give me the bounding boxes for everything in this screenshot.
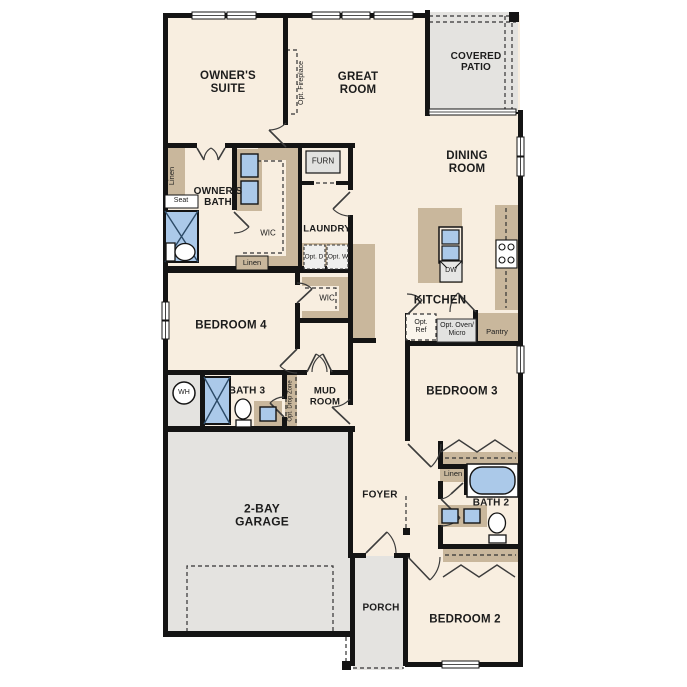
label-linen-owners-wic: Linen (243, 259, 261, 267)
label-wic-owners: WIC (260, 230, 276, 239)
floor-plan-geometry (0, 0, 687, 687)
room-label-bedroom-2: BEDROOM 2 (429, 614, 500, 627)
room-label-mud-room: MUD ROOM (303, 386, 347, 407)
label-opt-fireplace: Opt. Fireplace (298, 61, 306, 105)
label-furnace: FURN (312, 158, 334, 167)
garage-floor (166, 430, 350, 633)
room-label-bath-3: BATH 3 (229, 385, 266, 396)
porch-post (342, 661, 351, 670)
label-opt-oven-micro: Opt. Oven/ Micro (434, 322, 480, 338)
room-label-covered-patio: COVERED PATIO (444, 51, 508, 73)
label-opt-refrigerator: Opt. Ref (408, 319, 434, 335)
room-label-bath-2: BATH 2 (472, 497, 510, 508)
room-label-bedroom-4: BEDROOM 4 (195, 320, 266, 333)
room-label-owners-suite: OWNER'S SUITE (191, 70, 265, 96)
room-label-kitchen: KITCHEN (414, 295, 467, 308)
label-shower-seat: Seat (174, 197, 188, 205)
room-label-foyer: FOYER (362, 489, 397, 500)
label-wic-bedroom4: WIC (319, 295, 335, 304)
room-label-owners-bath: OWNER'S BATH (187, 186, 249, 208)
room-label-porch: PORCH (362, 602, 399, 613)
owners-toilet (166, 243, 195, 261)
label-opt-drop-zone: Opt. Drop Zone (288, 380, 295, 421)
cooktop (496, 240, 517, 268)
label-opt-washer: Opt. W (326, 253, 350, 260)
bath2-toilet (489, 513, 507, 543)
kitchen-counter-west (352, 244, 375, 340)
label-dishwasher: DW (445, 267, 457, 275)
bath3-toilet (235, 399, 251, 427)
room-label-great-room: GREAT ROOM (328, 71, 388, 97)
room-label-garage: 2-BAY GARAGE (222, 503, 302, 530)
bath3-sink (260, 407, 276, 421)
bath2-tub (467, 464, 518, 497)
label-water-heater: WH (178, 389, 190, 397)
label-pantry: Pantry (486, 328, 508, 336)
label-linen-bath2: Linen (444, 470, 462, 478)
floor-plan: OWNER'S SUITE GREAT ROOM COVERED PATIO D… (0, 0, 687, 687)
patio-post (509, 12, 519, 22)
room-label-laundry: LAUNDRY (303, 225, 351, 236)
room-label-bedroom-3: BEDROOM 3 (426, 386, 497, 399)
bath3-shower (204, 377, 230, 424)
label-linen-owners-bath: Linen (168, 167, 176, 185)
island-sink (439, 227, 462, 263)
label-opt-dryer: Opt. D (302, 253, 326, 260)
room-label-dining-room: DINING ROOM (437, 150, 497, 176)
